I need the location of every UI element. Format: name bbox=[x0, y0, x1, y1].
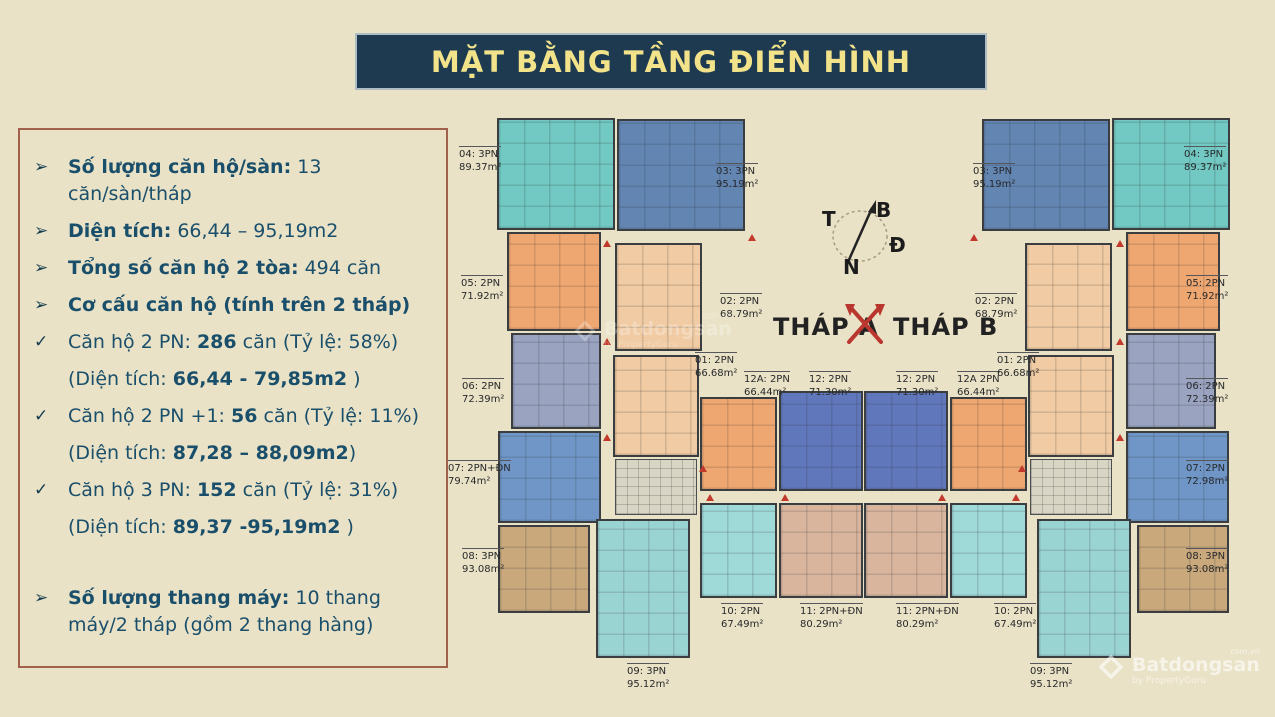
door-marker-icon bbox=[706, 494, 714, 501]
unit-label-b11: 11: 2PN+ĐN80.29m² bbox=[896, 603, 959, 631]
unit-block-a12 bbox=[779, 391, 863, 491]
unit-block-b12 bbox=[864, 391, 948, 491]
info-row: (Diện tích: 89,37 -95,19m2 ) bbox=[34, 514, 440, 541]
unit-block-b04 bbox=[1112, 118, 1230, 230]
door-marker-icon bbox=[1018, 465, 1026, 472]
unit-label-b10: 10: 2PN67.49m² bbox=[994, 603, 1036, 631]
check-bullet-icon: ✓ bbox=[34, 329, 68, 356]
compass-north-label: B bbox=[876, 198, 891, 222]
unit-label-b03: 03: 3PN95.19m² bbox=[973, 163, 1015, 191]
unit-block-a04 bbox=[497, 118, 615, 230]
unit-label-a03: 03: 3PN95.19m² bbox=[716, 163, 758, 191]
unit-block-a11 bbox=[779, 503, 863, 598]
watermark-center: com.vnBatdongsanby PropertyGuru bbox=[572, 312, 732, 350]
watermark-logo-icon bbox=[572, 318, 598, 344]
page-title-banner: MẶT BẰNG TẦNG ĐIỂN HÌNH bbox=[355, 33, 987, 90]
unit-label-b04: 04: 3PN89.37m² bbox=[1184, 146, 1226, 174]
unit-block-a09 bbox=[596, 519, 690, 658]
info-row: ✓Căn hộ 2 PN +1: 56 căn (Tỷ lệ: 11%) bbox=[34, 403, 440, 430]
info-panel: ➢Số lượng căn hộ/sàn: 13 căn/sàn/tháp ➢D… bbox=[18, 128, 448, 668]
unit-label-a12A: 12A: 2PN66.44m² bbox=[744, 371, 790, 399]
arrow-bullet-icon: ➢ bbox=[34, 585, 68, 639]
info-row: ➢Diện tích: 66,44 – 95,19m2 bbox=[34, 218, 440, 245]
door-marker-icon bbox=[699, 465, 707, 472]
door-marker-icon bbox=[781, 494, 789, 501]
unit-label-b08: 08: 3PN93.08m² bbox=[1186, 548, 1228, 576]
unit-label-b07: 07: 2PN72.98m² bbox=[1186, 460, 1228, 488]
unit-label-b09: 09: 3PN95.12m² bbox=[1030, 663, 1072, 691]
unit-block-a07 bbox=[498, 431, 601, 523]
unit-block-b12A bbox=[950, 397, 1027, 491]
check-bullet-icon: ✓ bbox=[34, 477, 68, 504]
compass-west-label: T bbox=[822, 207, 836, 231]
unit-label-a09: 09: 3PN95.12m² bbox=[627, 663, 669, 691]
arrow-bullet-icon: ➢ bbox=[34, 255, 68, 282]
unit-block-a10 bbox=[700, 503, 777, 598]
unit-label-b12: 12: 2PN71.30m² bbox=[896, 371, 938, 399]
unit-label-b06: 06: 2PN72.39m² bbox=[1186, 378, 1228, 406]
check-bullet-icon: ✓ bbox=[34, 403, 68, 430]
unit-label-a08: 08: 3PN93.08m² bbox=[462, 548, 504, 576]
info-row: ➢Cơ cấu căn hộ (tính trên 2 tháp) bbox=[34, 292, 440, 319]
unit-block-b02 bbox=[1025, 243, 1112, 351]
door-marker-icon bbox=[603, 240, 611, 247]
lobby-core-b bbox=[1030, 459, 1112, 515]
lobby-core-a bbox=[615, 459, 697, 515]
door-marker-icon bbox=[1116, 338, 1124, 345]
unit-label-a06: 06: 2PN72.39m² bbox=[462, 378, 504, 406]
unit-label-a10: 10: 2PN67.49m² bbox=[721, 603, 763, 631]
info-row: ➢Số lượng thang máy: 10 thang máy/2 tháp… bbox=[34, 585, 440, 639]
unit-label-a07: 07: 2PN+ĐN79.74m² bbox=[448, 460, 511, 488]
info-row: ✓Căn hộ 2 PN: 286 căn (Tỷ lệ: 58%) bbox=[34, 329, 440, 356]
door-marker-icon bbox=[970, 234, 978, 241]
watermark-logo-icon bbox=[1096, 652, 1126, 682]
door-marker-icon bbox=[1116, 434, 1124, 441]
arrow-bullet-icon: ➢ bbox=[34, 292, 68, 319]
unit-block-b11 bbox=[864, 503, 948, 598]
unit-label-a05: 05: 2PN71.92m² bbox=[461, 275, 503, 303]
tower-b-label: THÁP B bbox=[893, 313, 998, 341]
unit-block-b01 bbox=[1028, 355, 1114, 457]
door-marker-icon bbox=[1116, 240, 1124, 247]
arrow-bullet-icon: ➢ bbox=[34, 218, 68, 245]
info-row: ✓Căn hộ 3 PN: 152 căn (Tỷ lệ: 31%) bbox=[34, 477, 440, 504]
info-row: ➢Số lượng căn hộ/sàn: 13 căn/sàn/tháp bbox=[34, 154, 440, 208]
compass-south-label: N bbox=[843, 255, 860, 279]
door-marker-icon bbox=[938, 494, 946, 501]
unit-label-b05: 05: 2PN71.92m² bbox=[1186, 275, 1228, 303]
page-title: MẶT BẰNG TẦNG ĐIỂN HÌNH bbox=[431, 45, 911, 79]
door-marker-icon bbox=[748, 234, 756, 241]
info-row: (Diện tích: 66,44 - 79,85m2 ) bbox=[34, 366, 440, 393]
info-row: (Diện tích: 87,28 – 88,09m2) bbox=[34, 440, 440, 467]
door-marker-icon bbox=[603, 434, 611, 441]
unit-label-a11: 11: 2PN+ĐN80.29m² bbox=[800, 603, 863, 631]
crossed-flags-icon bbox=[841, 300, 889, 348]
arrow-bullet-icon: ➢ bbox=[34, 154, 68, 208]
unit-label-a01: 01: 2PN66.68m² bbox=[695, 352, 737, 380]
door-marker-icon bbox=[1012, 494, 1020, 501]
unit-label-b12A: 12A 2PN66.44m² bbox=[957, 371, 1000, 399]
unit-block-b09 bbox=[1037, 519, 1131, 658]
unit-label-b01: 01: 2PN66.68m² bbox=[997, 352, 1039, 380]
unit-block-a01 bbox=[613, 355, 699, 457]
info-row: ➢Tổng số căn hộ 2 tòa: 494 căn bbox=[34, 255, 440, 282]
unit-block-b10 bbox=[950, 503, 1027, 598]
unit-label-a12: 12: 2PN71.30m² bbox=[809, 371, 851, 399]
floor-plan-page: MẶT BẰNG TẦNG ĐIỂN HÌNH ➢Số lượng căn hộ… bbox=[0, 0, 1275, 717]
watermark-corner: com.vnBatdongsanby PropertyGuru bbox=[1096, 648, 1260, 686]
unit-label-a04: 04: 3PN89.37m² bbox=[459, 146, 501, 174]
compass-east-label: Đ bbox=[889, 233, 906, 257]
unit-block-a12A bbox=[700, 397, 777, 491]
unit-block-a08 bbox=[498, 525, 590, 613]
